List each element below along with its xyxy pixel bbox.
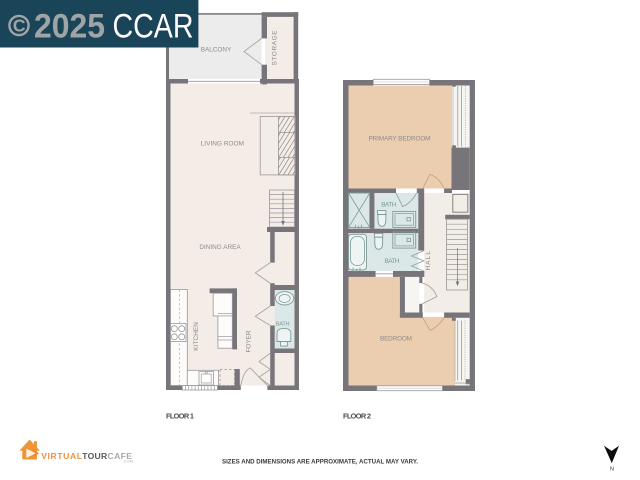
svg-text:BALCONY: BALCONY	[201, 46, 232, 53]
svg-text:FLOOR 1: FLOOR 1	[166, 411, 194, 420]
svg-text:FOYER: FOYER	[246, 330, 253, 352]
svg-text:FLOOR 2: FLOOR 2	[343, 411, 371, 420]
svg-text:SIZES AND DIMENSIONS ARE APPRO: SIZES AND DIMENSIONS ARE APPROXIMATE, AC…	[222, 458, 418, 465]
svg-text:2025: 2025	[34, 8, 105, 46]
svg-text:BATH: BATH	[381, 202, 396, 209]
svg-text:STORAGE: STORAGE	[272, 31, 279, 66]
svg-text:C: C	[13, 16, 26, 36]
svg-text:N: N	[610, 467, 614, 473]
svg-text:BEDROOM: BEDROOM	[380, 335, 412, 342]
svg-text:KITCHEN: KITCHEN	[193, 322, 200, 351]
svg-text:BATH: BATH	[276, 321, 290, 327]
svg-text:VIRTUALTOURCAFE: VIRTUALTOURCAFE	[41, 451, 132, 461]
svg-text:CCAR: CCAR	[113, 8, 194, 46]
svg-text:LIVING ROOM: LIVING ROOM	[201, 141, 244, 148]
svg-text:.COM: .COM	[123, 459, 133, 464]
svg-text:HALL: HALL	[425, 251, 432, 271]
svg-text:DINING AREA: DINING AREA	[199, 244, 241, 251]
svg-text:BATH: BATH	[385, 258, 400, 265]
svg-text:PRIMARY BEDROOM: PRIMARY BEDROOM	[369, 135, 431, 142]
